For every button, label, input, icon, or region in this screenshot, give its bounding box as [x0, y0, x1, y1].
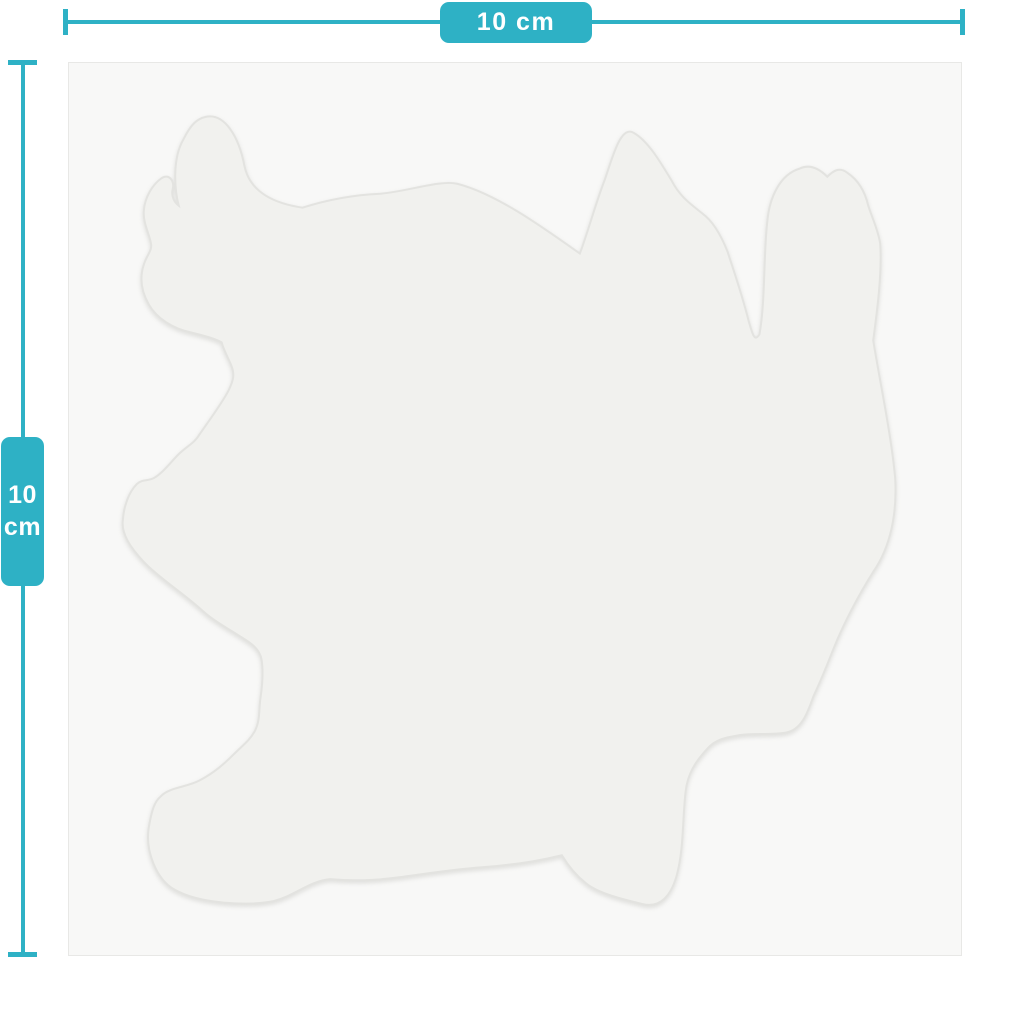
- height-dimension-unit: cm: [4, 512, 41, 543]
- width-dimension-tick-right: [960, 9, 965, 35]
- sticker-canvas: [68, 62, 962, 956]
- product-mockup-page: 10 cm 10 cm: [0, 0, 1024, 1024]
- height-dimension-tick-top: [8, 60, 37, 65]
- sticker-die-cut-shape: [69, 63, 961, 955]
- height-dimension-tick-bottom: [8, 952, 37, 957]
- height-dimension-label: 10 cm: [1, 437, 44, 586]
- width-dimension-tick-left: [63, 9, 68, 35]
- width-dimension-value: 10 cm: [477, 8, 555, 37]
- sticker-silhouette: [123, 116, 896, 904]
- height-dimension-value: 10: [8, 480, 37, 511]
- width-dimension-label: 10 cm: [440, 2, 592, 43]
